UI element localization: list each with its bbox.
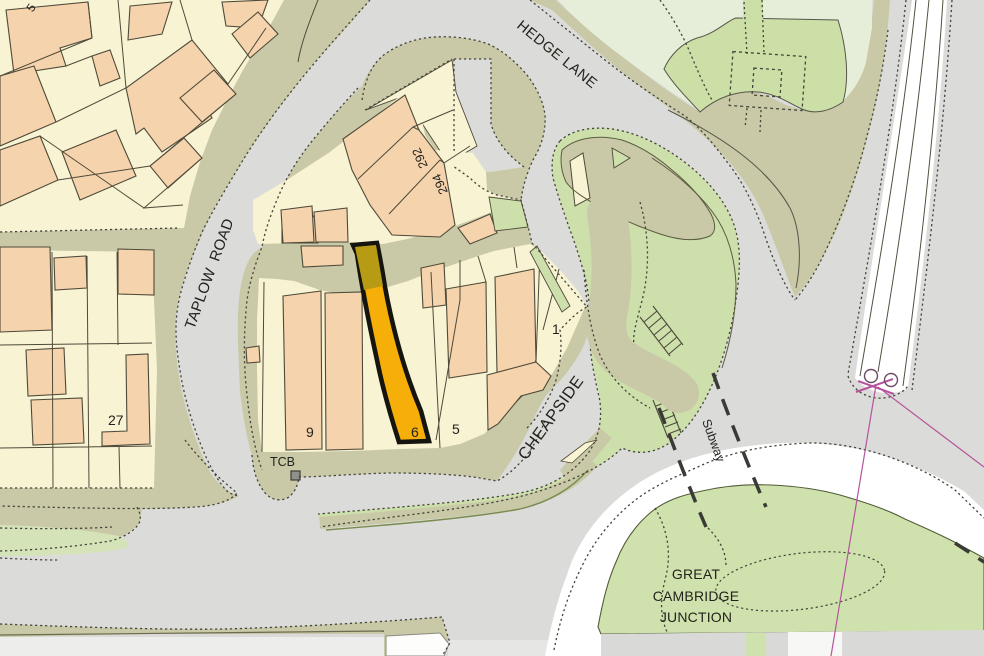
svg-text:6: 6 — [411, 424, 419, 440]
svg-text:JUNCTION: JUNCTION — [660, 609, 732, 625]
svg-text:TCB: TCB — [270, 455, 295, 469]
svg-text:9: 9 — [306, 424, 314, 440]
svg-text:CAMBRIDGE: CAMBRIDGE — [653, 588, 740, 604]
svg-text:5: 5 — [452, 421, 460, 437]
svg-text:27: 27 — [108, 412, 124, 428]
svg-text:GREAT: GREAT — [672, 566, 720, 582]
svg-text:1: 1 — [552, 321, 560, 337]
